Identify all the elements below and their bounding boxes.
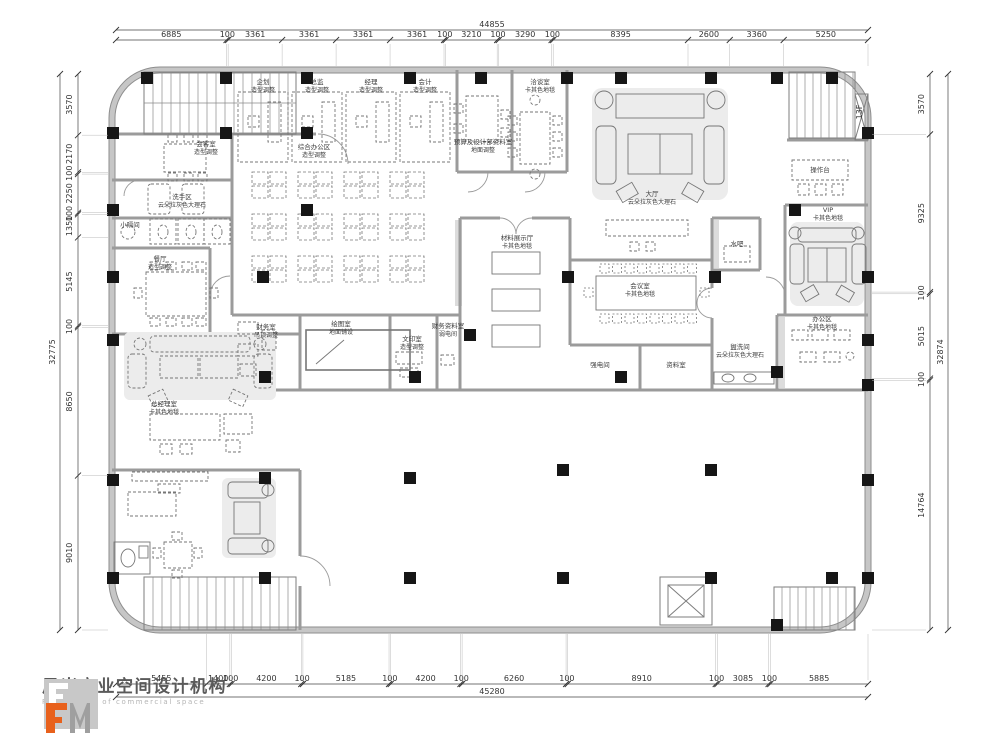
chair xyxy=(688,264,697,273)
room-label: 办公区 xyxy=(812,314,832,323)
dim-label: 100 xyxy=(65,166,74,181)
column xyxy=(107,572,119,584)
workstation xyxy=(270,270,286,282)
workstation xyxy=(408,270,424,282)
dim-label: 2250 xyxy=(65,183,74,203)
room-label: 预算及设计部资料室 xyxy=(454,137,513,146)
column xyxy=(615,371,627,383)
dim-label: 3290 xyxy=(515,30,535,39)
workstation xyxy=(362,256,378,268)
room-label-note: 地面调整 xyxy=(471,146,495,154)
cubicle xyxy=(400,92,450,162)
dim-label: 3361 xyxy=(353,30,373,39)
workstation xyxy=(408,172,424,184)
dim-label: 8910 xyxy=(632,674,652,683)
room-label-note: 造型调整 xyxy=(194,148,218,156)
column xyxy=(862,334,874,346)
drawing-sheet: 6885100336133613361336110032101003290100… xyxy=(0,0,1000,735)
workstation xyxy=(252,256,268,268)
workstation xyxy=(316,172,332,184)
cubicle xyxy=(238,92,288,162)
room-label-note: 造型调整 xyxy=(305,86,329,94)
column xyxy=(862,379,874,391)
dim-label: 9325 xyxy=(917,203,926,223)
dim-label: 8650 xyxy=(65,391,74,411)
column xyxy=(107,474,119,486)
workstation xyxy=(408,186,424,198)
room-label: 绘图室 xyxy=(331,319,351,328)
chair xyxy=(650,314,659,323)
stair-bottom-left xyxy=(144,577,296,630)
room-label: 综合办公区 xyxy=(298,142,331,151)
chair xyxy=(638,264,647,273)
workstation xyxy=(316,256,332,268)
room-label-note: 卡其色地毯 xyxy=(807,323,837,331)
workstation xyxy=(298,270,314,282)
dim-label: 100 xyxy=(545,30,560,39)
column xyxy=(107,204,119,216)
workstation xyxy=(270,172,286,184)
workstation xyxy=(390,270,406,282)
column xyxy=(259,572,271,584)
dim-label: 5015 xyxy=(917,326,926,346)
room-label: 会客室 xyxy=(196,139,216,148)
room-label: 企划 xyxy=(257,77,270,86)
workstation xyxy=(298,186,314,198)
workstation xyxy=(344,228,360,240)
room-label: 洽谈室 xyxy=(530,77,550,86)
column xyxy=(789,204,801,216)
room-label-note: 造型调整 xyxy=(400,343,424,351)
dim-label: 1350 xyxy=(65,216,74,236)
workstation xyxy=(408,228,424,240)
chair xyxy=(248,116,259,127)
column xyxy=(862,127,874,139)
room-label: 文印室 xyxy=(402,334,422,343)
chair xyxy=(625,264,634,273)
room-label: 盥洗间 xyxy=(730,342,750,351)
column xyxy=(107,127,119,139)
dim-label: 32874 xyxy=(936,339,945,364)
column xyxy=(464,329,476,341)
workstation xyxy=(270,186,286,198)
workstation xyxy=(344,172,360,184)
workstation xyxy=(270,256,286,268)
column xyxy=(141,72,153,84)
workstation xyxy=(316,228,332,240)
room-label: 洗手区 xyxy=(172,192,192,201)
column xyxy=(705,464,717,476)
workstation xyxy=(270,228,286,240)
column xyxy=(826,572,838,584)
dim-label: 100 xyxy=(220,30,235,39)
room-label-note: 云朵拉灰色大理石 xyxy=(158,201,206,209)
column xyxy=(862,474,874,486)
dim-label: 100 xyxy=(559,674,574,683)
room-label: 餐厅 xyxy=(154,254,168,263)
workstation xyxy=(390,256,406,268)
chair xyxy=(600,314,609,323)
workstation xyxy=(362,186,378,198)
room-label-note: 云朵拉灰色大理石 xyxy=(716,351,764,359)
room-label: 水吧 xyxy=(731,239,745,248)
dim-label: 3210 xyxy=(461,30,481,39)
dim-label: 5885 xyxy=(809,674,829,683)
chair xyxy=(613,314,622,323)
workstation xyxy=(298,228,314,240)
chair xyxy=(688,314,697,323)
workstation xyxy=(298,256,314,268)
dim-label: 6260 xyxy=(504,674,524,683)
dim-label: 100 xyxy=(454,674,469,683)
column xyxy=(257,271,269,283)
room-label: 资料室 xyxy=(666,360,686,369)
chair xyxy=(663,264,672,273)
dim-label: 5250 xyxy=(816,30,836,39)
room-label-note: 造型调整 xyxy=(251,86,275,94)
workstation xyxy=(362,214,378,226)
dim-label: 6885 xyxy=(161,30,181,39)
column xyxy=(404,572,416,584)
column xyxy=(259,472,271,484)
room-label: 财务资料室 xyxy=(432,321,465,330)
dim-label: 100 xyxy=(762,674,777,683)
room-label: 材料展示厅 xyxy=(501,233,534,242)
dim-label: 3360 xyxy=(747,30,767,39)
workstation xyxy=(252,172,268,184)
room-label: 操作台 xyxy=(810,165,830,174)
dim-label: 3085 xyxy=(733,674,753,683)
workstation xyxy=(390,214,406,226)
chair xyxy=(650,264,659,273)
room-label-note: 造型调整 xyxy=(148,263,172,271)
room-label: 总经理室 xyxy=(151,399,178,408)
dim-label: 14764 xyxy=(917,492,926,517)
column xyxy=(107,271,119,283)
desk xyxy=(430,102,443,142)
column xyxy=(862,572,874,584)
column xyxy=(220,127,232,139)
room-label: 财务室 xyxy=(256,322,276,331)
dim-label: 4200 xyxy=(415,674,435,683)
dim-label: 9010 xyxy=(65,543,74,563)
room-label: 小隔间 xyxy=(120,220,140,229)
dim-label: 32775 xyxy=(48,339,57,364)
room-label-note: 卡其色地毯 xyxy=(813,214,843,222)
workstation xyxy=(252,214,268,226)
workstation xyxy=(344,214,360,226)
column xyxy=(404,72,416,84)
workstation xyxy=(316,270,332,282)
rugs xyxy=(124,88,864,558)
column xyxy=(709,271,721,283)
dim-label: 100 xyxy=(490,30,505,39)
room-label: 经理 xyxy=(365,77,379,86)
chair xyxy=(356,116,367,127)
column xyxy=(771,366,783,378)
chair xyxy=(663,314,672,323)
workstation xyxy=(408,256,424,268)
room-label-note: 卡其色地毯 xyxy=(525,86,555,94)
dim-label: 100 xyxy=(294,674,309,683)
column xyxy=(862,271,874,283)
desk xyxy=(376,102,389,142)
workstation xyxy=(344,270,360,282)
chair xyxy=(600,264,609,273)
dim-label: 3570 xyxy=(917,94,926,114)
room-label-note: 地面铺设 xyxy=(329,328,353,336)
chair xyxy=(613,264,622,273)
workstation xyxy=(408,214,424,226)
room-label-note: 吊顶调整 xyxy=(254,331,278,339)
workstation xyxy=(362,270,378,282)
dim-label: 8395 xyxy=(610,30,630,39)
dim-label: 100 xyxy=(65,319,74,334)
dim-label: 45280 xyxy=(479,687,504,696)
column xyxy=(404,472,416,484)
workstation xyxy=(316,214,332,226)
chair xyxy=(675,264,684,273)
workstation xyxy=(362,172,378,184)
dim-label: 100 xyxy=(917,285,926,300)
column xyxy=(615,72,627,84)
dim-label: 5185 xyxy=(336,674,356,683)
room-label: 总监 xyxy=(311,77,325,86)
dim-label: 100 xyxy=(709,674,724,683)
workstation xyxy=(252,228,268,240)
workstation xyxy=(390,186,406,198)
room-label-note: 卡其色地毯 xyxy=(625,290,655,298)
column xyxy=(771,72,783,84)
column xyxy=(705,72,717,84)
dim-label: 2170 xyxy=(65,144,74,164)
floor-tag: 13F xyxy=(855,104,864,119)
column xyxy=(771,619,783,631)
column xyxy=(826,72,838,84)
column xyxy=(107,334,119,346)
room-label: 强电间 xyxy=(590,360,610,369)
room-label: 大厅 xyxy=(646,189,660,198)
dim-label: 3570 xyxy=(65,94,74,114)
dim-label: 100 xyxy=(382,674,397,683)
room-label-note: 造型调整 xyxy=(302,151,326,159)
room-label-note: 造型调整 xyxy=(359,86,383,94)
column xyxy=(220,72,232,84)
dim-label: 3361 xyxy=(299,30,319,39)
workstation xyxy=(316,186,332,198)
chair xyxy=(675,314,684,323)
dim-label: 3361 xyxy=(407,30,427,39)
room-label: 会计 xyxy=(419,77,433,86)
workstation xyxy=(252,186,268,198)
workstation xyxy=(390,172,406,184)
room-label-note: 卡其色地毯 xyxy=(502,242,532,250)
column xyxy=(301,204,313,216)
company-logo: 风米商业空间设计机构 F. M design of commercial spa… xyxy=(42,679,227,706)
room-label-note: 云朵拉灰色大理石 xyxy=(628,198,676,206)
chair xyxy=(410,116,421,127)
dim-label: 44855 xyxy=(479,20,504,29)
floor-plan: 6885100336133613361336110032101003290100… xyxy=(0,0,1000,735)
workstation xyxy=(344,256,360,268)
logo-mark-icon xyxy=(42,679,100,733)
column xyxy=(561,72,573,84)
column xyxy=(562,271,574,283)
chair xyxy=(638,314,647,323)
workstation xyxy=(270,214,286,226)
workstation xyxy=(298,172,314,184)
room-label-note: 造型调整 xyxy=(413,86,437,94)
dim-label: 3361 xyxy=(245,30,265,39)
column xyxy=(557,572,569,584)
dim-label: 4200 xyxy=(256,674,276,683)
dim-label: 100 xyxy=(437,30,452,39)
column xyxy=(409,371,421,383)
chair xyxy=(584,288,593,297)
column xyxy=(705,572,717,584)
column xyxy=(259,371,271,383)
column xyxy=(557,464,569,476)
column xyxy=(301,127,313,139)
column xyxy=(475,72,487,84)
room-label: 会议室 xyxy=(630,281,650,290)
room-label: VIP xyxy=(823,206,833,214)
workstation xyxy=(344,186,360,198)
room-label-note: 弱电间 xyxy=(439,330,457,338)
dim-label: 100 xyxy=(917,372,926,387)
chair xyxy=(625,314,634,323)
workstation xyxy=(362,228,378,240)
dim-label: 5145 xyxy=(65,271,74,291)
cubicle xyxy=(346,92,396,162)
dim-label: 2600 xyxy=(699,30,719,39)
workstation xyxy=(390,228,406,240)
chair xyxy=(302,116,313,127)
room-label-note: 卡其色地毯 xyxy=(149,408,179,416)
